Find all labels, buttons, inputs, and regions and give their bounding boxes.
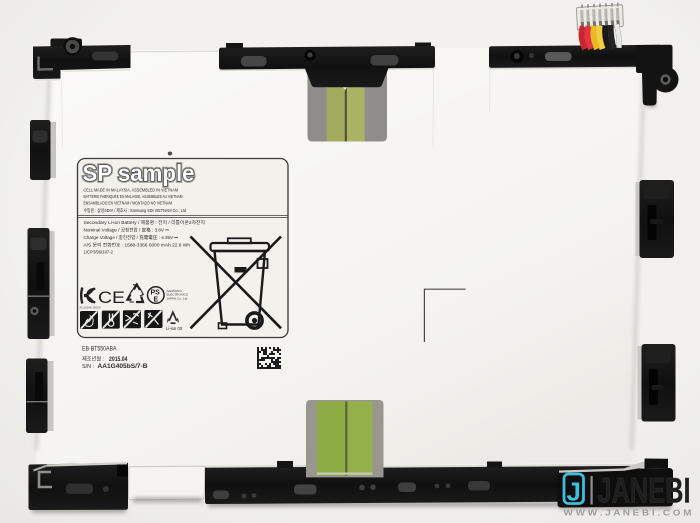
svg-text:ENSAMBLADO EN VIETNAM / MONTAD: ENSAMBLADO EN VIETNAM / MONTADO NO VIETN… [84,201,173,206]
svg-text:AA1G405bS/7-B: AA1G405bS/7-B [98,363,148,370]
svg-text:A/S 문의 전화번호 : 1588-3366 6000: A/S 문의 전화번호 : 1588-3366 6000 mAh 22.8 Wh [84,241,191,248]
svg-text:SP sample: SP sample [83,160,195,186]
svg-text:Li-ion 00: Li-ion 00 [166,326,183,331]
svg-text:S/N :: S/N : [82,364,94,370]
svg-text:EB-BT550ABA: EB-BT550ABA [82,347,117,353]
svg-text:Charge Voltage / 충전전압 / 充電電圧 :: Charge Voltage / 충전전압 / 充電電圧 : 4.35V ⎓ [84,234,179,241]
svg-text:J: J [567,477,581,507]
svg-text:1ICP3/96/107-2: 1ICP3/96/107-2 [84,250,114,255]
svg-text:2015.04: 2015.04 [109,356,128,363]
svg-text:BATTERIE FABRIQUÉE EN MALAISIE: BATTERIE FABRIQUÉE EN MALAISIE, ASSEMBLÉ… [84,193,183,199]
svg-text:CELL MADE IN MALAYSIA, ASSEMBL: CELL MADE IN MALAYSIA, ASSEMBLED IN VIET… [84,187,179,192]
svg-text:JANEBI: JANEBI [598,472,691,511]
svg-text:수입원 : 삼성SDIV / 제조사 : Samsung S: 수입원 : 삼성SDIV / 제조사 : Samsung SDI VIETNAM… [84,207,187,214]
svg-text:CE: CE [98,289,125,307]
svg-text:W W W . J A N E B I . C O M: W W W . J A N E B I . C O M [564,509,692,518]
svg-text:Nominal Voltage / 공칭전압 / 定格 :: Nominal Voltage / 공칭전압 / 定格 : 3.8V ⎓ [84,227,170,234]
svg-text:JAPAN Co., Ltd: JAPAN Co., Ltd [167,296,188,300]
svg-text:제조년월 :: 제조년월 : [82,355,104,363]
svg-text:Secondary Li-ion Battery / 제품명: Secondary Li-ion Battery / 제품명 : 전지 / 리튬… [84,219,206,226]
svg-text:E: E [154,296,159,303]
